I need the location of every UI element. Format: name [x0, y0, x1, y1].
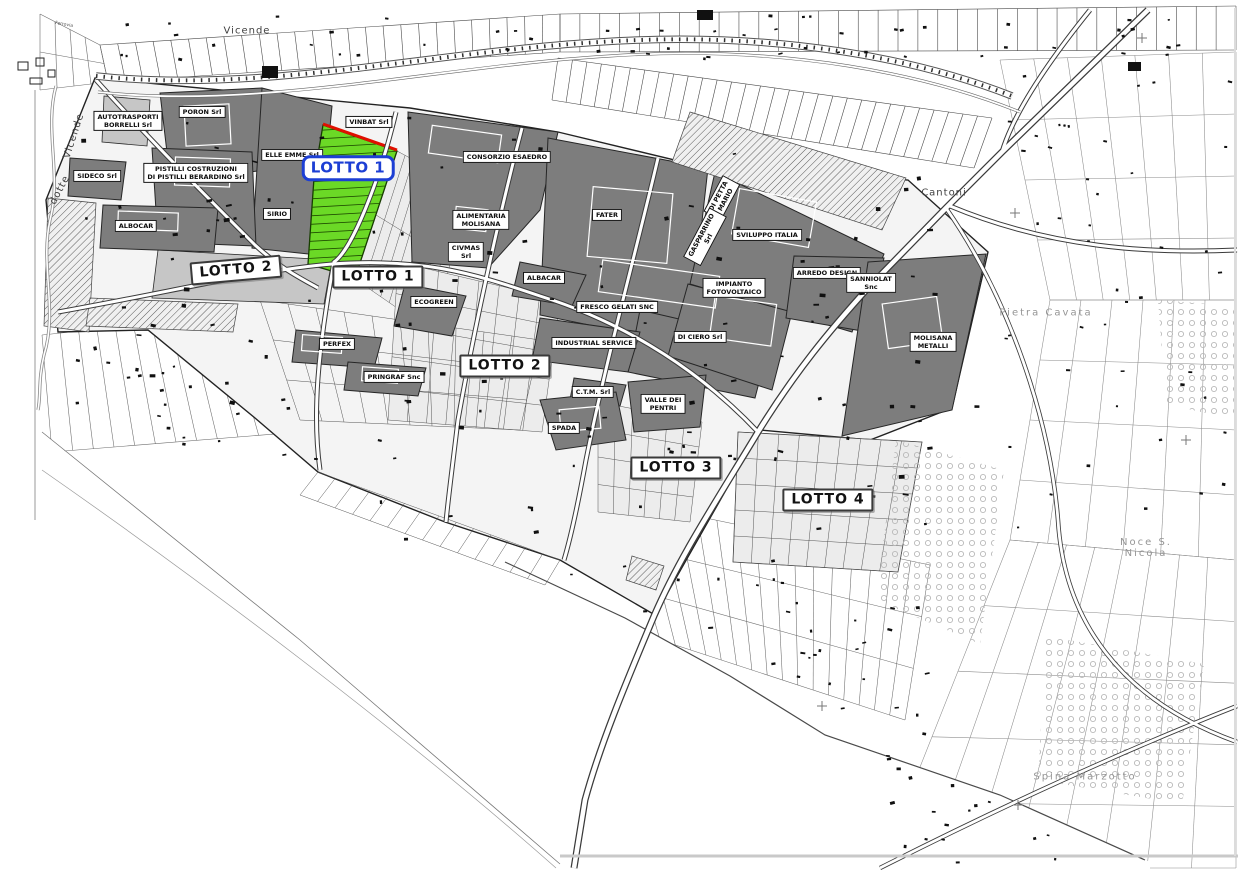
cadastral-map: AUTOTRASPORTI BORRELLI SrlPORON SrlELLE … — [0, 0, 1238, 875]
map-canvas — [0, 0, 1238, 875]
